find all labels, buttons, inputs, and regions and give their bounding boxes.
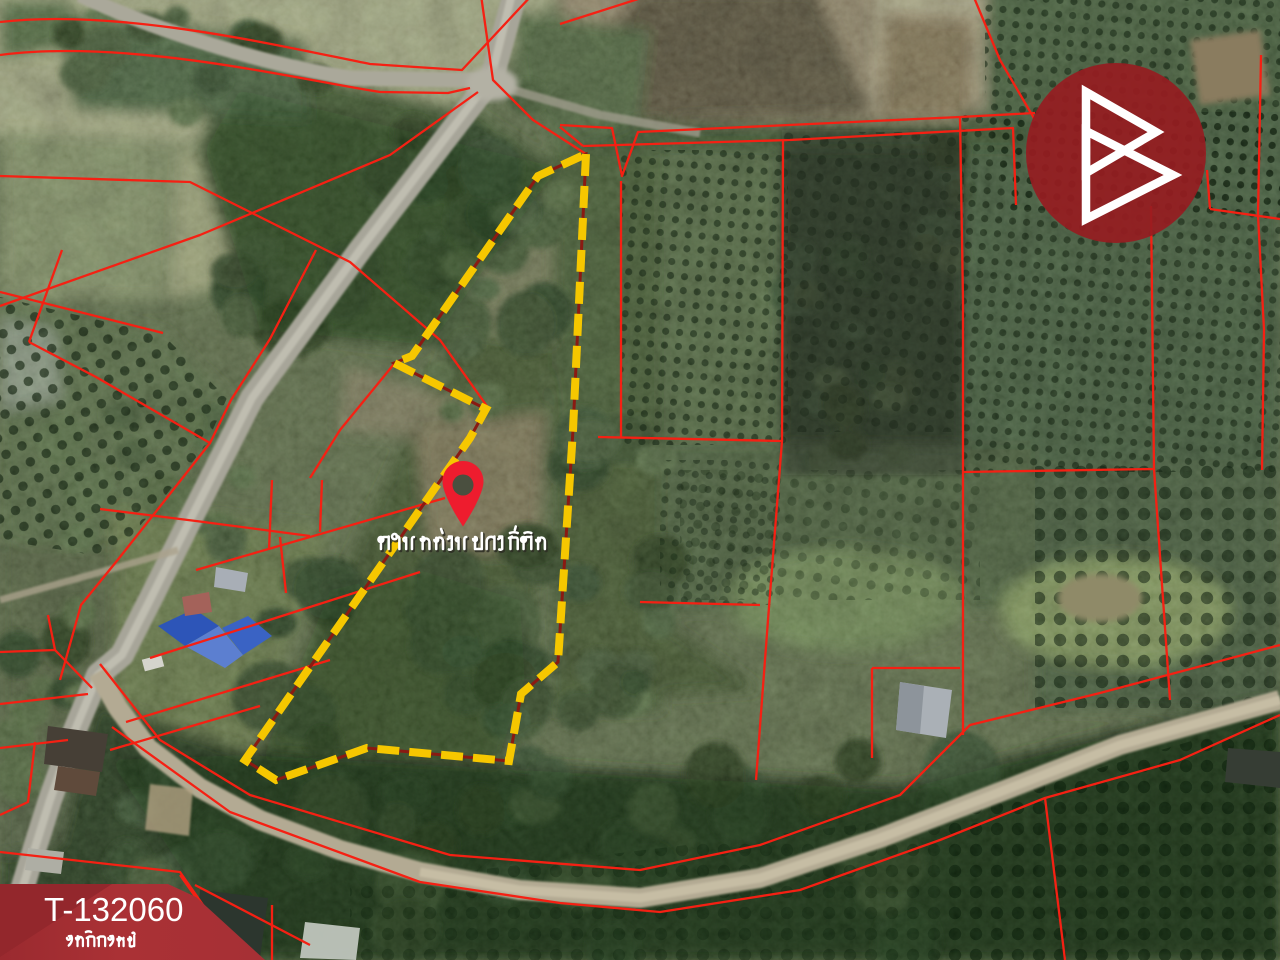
svg-text:T-132060: T-132060: [44, 891, 183, 928]
